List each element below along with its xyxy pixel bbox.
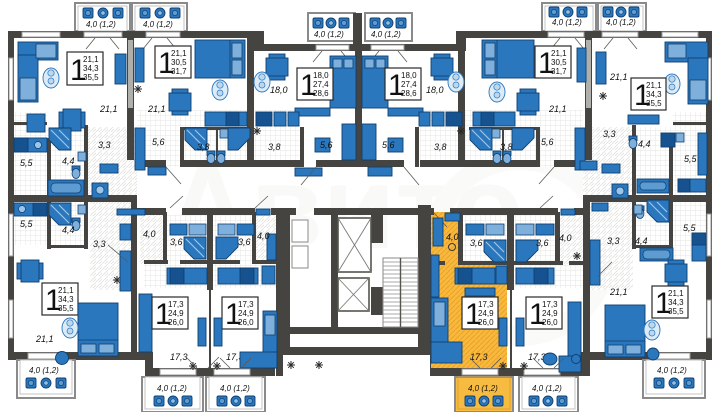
svg-text:35,5: 35,5 [668,307,684,316]
svg-text:18,0: 18,0 [401,71,417,80]
svg-text:3,3: 3,3 [93,239,106,249]
svg-text:17,3: 17,3 [168,300,184,309]
svg-text:4,0 (1,2): 4,0 (1,2) [29,366,59,375]
svg-text:4,0: 4,0 [143,229,156,239]
svg-text:28,6: 28,6 [401,89,417,98]
svg-text:21,1: 21,1 [668,289,684,298]
svg-text:26,0: 26,0 [238,318,254,327]
svg-text:31,7: 31,7 [551,67,567,76]
svg-text:5,6: 5,6 [382,140,395,150]
svg-text:4,0: 4,0 [446,232,459,242]
svg-text:3,6: 3,6 [536,238,549,248]
svg-text:4,0 (1,2): 4,0 (1,2) [143,20,173,29]
svg-text:4,0 (1,2): 4,0 (1,2) [371,30,401,39]
svg-text:21,1: 21,1 [551,49,567,58]
svg-text:18,0: 18,0 [313,71,329,80]
svg-text:34,3: 34,3 [83,64,99,73]
svg-text:21,1: 21,1 [35,334,54,344]
svg-text:17,3: 17,3 [542,300,558,309]
svg-text:5,5: 5,5 [683,223,697,233]
svg-text:5,5: 5,5 [20,219,34,229]
svg-text:4,0 (1,2): 4,0 (1,2) [157,384,187,393]
svg-text:5,6: 5,6 [320,140,333,150]
svg-text:24,9: 24,9 [168,309,184,318]
svg-text:30,5: 30,5 [171,58,187,67]
svg-text:3,6: 3,6 [238,237,251,247]
svg-text:35,5: 35,5 [83,73,99,82]
svg-text:4,0: 4,0 [257,231,270,241]
svg-text:26,0: 26,0 [542,318,558,327]
svg-text:17,3: 17,3 [238,300,254,309]
svg-text:3,6: 3,6 [170,237,183,247]
svg-text:4,0 (1,2): 4,0 (1,2) [532,384,562,393]
svg-text:31,7: 31,7 [171,67,187,76]
svg-text:4,0 (1,2): 4,0 (1,2) [314,30,344,39]
svg-text:28,6: 28,6 [313,89,329,98]
svg-text:27,4: 27,4 [313,80,329,89]
svg-text:4,4: 4,4 [62,156,75,166]
svg-text:24,9: 24,9 [238,309,254,318]
svg-text:21,1: 21,1 [99,104,118,114]
svg-text:34,3: 34,3 [58,295,74,304]
svg-text:21,1: 21,1 [58,286,74,295]
svg-text:21,1: 21,1 [171,49,187,58]
svg-text:4,0 (1,2): 4,0 (1,2) [220,384,250,393]
svg-text:21,1: 21,1 [609,287,628,297]
svg-text:21,1: 21,1 [646,81,662,90]
svg-text:17,3: 17,3 [478,300,494,309]
svg-text:35,5: 35,5 [646,99,662,108]
svg-text:35,5: 35,5 [58,304,74,313]
svg-text:3,3: 3,3 [607,236,620,246]
svg-text:21,1: 21,1 [548,104,567,114]
svg-text:18,0: 18,0 [426,85,444,95]
svg-text:27,4: 27,4 [401,80,417,89]
svg-text:4,0 (1,2): 4,0 (1,2) [552,18,582,27]
svg-text:4,4: 4,4 [62,225,75,235]
svg-text:3,8: 3,8 [434,142,447,152]
svg-text:21,1: 21,1 [609,72,628,82]
svg-text:3,8: 3,8 [500,142,513,152]
svg-text:34,3: 34,3 [668,298,684,307]
svg-text:4,0: 4,0 [559,233,572,243]
svg-text:24,9: 24,9 [478,309,494,318]
svg-text:4,0 (1,2): 4,0 (1,2) [657,366,687,375]
svg-text:3,8: 3,8 [197,142,210,152]
svg-text:21,1: 21,1 [147,104,166,114]
svg-text:3,6: 3,6 [470,238,483,248]
svg-text:21,1: 21,1 [83,55,99,64]
svg-text:4,4: 4,4 [635,236,648,246]
svg-text:4,0 (1,2): 4,0 (1,2) [606,18,636,27]
svg-text:30,5: 30,5 [551,58,567,67]
svg-text:26,0: 26,0 [478,318,494,327]
svg-text:34,3: 34,3 [646,90,662,99]
svg-text:24,9: 24,9 [542,309,558,318]
svg-text:17,3: 17,3 [170,352,188,362]
svg-text:26,0: 26,0 [168,318,184,327]
svg-text:3,3: 3,3 [98,140,111,150]
svg-text:5,5: 5,5 [684,154,698,164]
svg-text:4,4: 4,4 [638,139,651,149]
svg-text:4,0 (1,2): 4,0 (1,2) [468,384,498,393]
svg-text:3,3: 3,3 [603,129,616,139]
svg-text:3,8: 3,8 [268,142,281,152]
svg-text:5,5: 5,5 [20,158,34,168]
svg-text:5,6: 5,6 [541,137,554,147]
svg-text:18,0: 18,0 [270,85,288,95]
svg-text:4,0 (1,2): 4,0 (1,2) [86,20,116,29]
svg-text:5,6: 5,6 [152,137,165,147]
